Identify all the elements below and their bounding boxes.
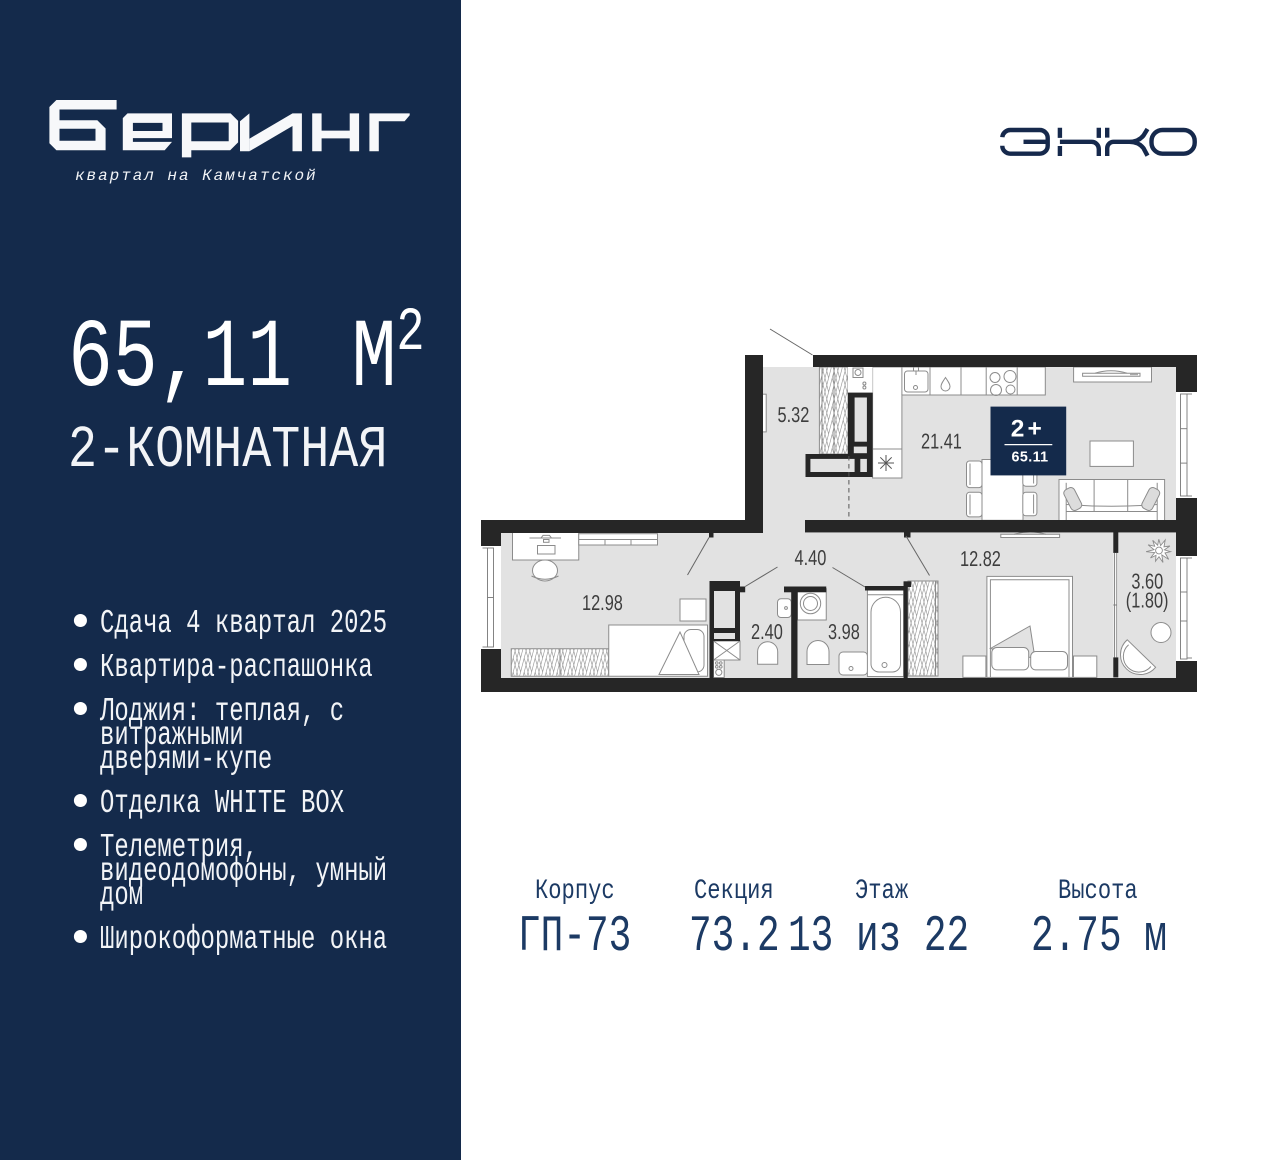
svg-text:5.32: 5.32 [778,403,810,427]
svg-text:65.11: 65.11 [1012,450,1049,466]
svg-text:2.40: 2.40 [751,620,783,644]
svg-text:21.41: 21.41 [921,429,962,453]
svg-text:(1.80): (1.80) [1126,589,1169,613]
svg-text:3.98: 3.98 [828,620,860,644]
svg-text:12.98: 12.98 [582,591,623,615]
svg-text:4.40: 4.40 [795,546,827,570]
svg-text:12.82: 12.82 [960,547,1001,571]
